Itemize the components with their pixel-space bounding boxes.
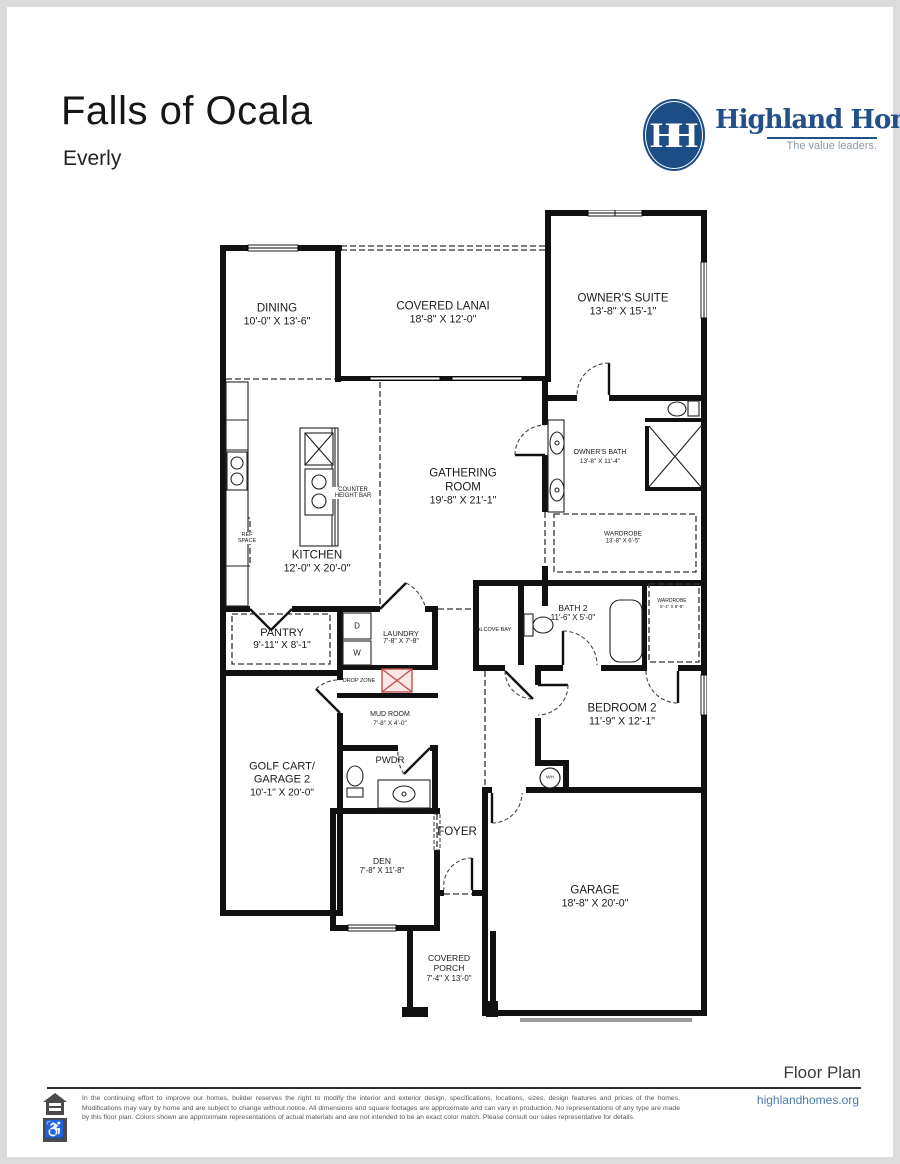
logo-rule: The value leaders. bbox=[767, 137, 877, 152]
document-page: Falls of Ocala Everly HH Highland Homes … bbox=[0, 0, 900, 1164]
website-url: highlandhomes.org bbox=[757, 1093, 859, 1107]
room-label-dining: DINING10'-0" X 13'-6" bbox=[222, 302, 332, 329]
alcove-bay-label: ALCOVE BAY bbox=[476, 627, 512, 633]
accessibility-icon: ♿ bbox=[43, 1118, 67, 1142]
room-label-foyer: FOYER bbox=[417, 825, 497, 839]
room-label-golf-cart-garage: GOLF CART/ GARAGE 210'-1" X 20'-0" bbox=[230, 760, 335, 799]
ref-space-label: REF SPACE bbox=[232, 532, 262, 544]
highland-homes-logo: HH Highland Homes The value leaders. bbox=[643, 99, 877, 177]
plan-name: Everly bbox=[63, 147, 121, 171]
room-label-pwdr: PWDR bbox=[355, 755, 425, 767]
logo-company-name: Highland Homes bbox=[715, 105, 877, 135]
drop-zone-bench bbox=[382, 669, 412, 692]
room-label-owners-suite: OWNER'S SUITE13'-8" X 15'-1" bbox=[543, 292, 703, 319]
floor-plan-label: Floor Plan bbox=[784, 1063, 861, 1083]
equal-housing-icon bbox=[43, 1093, 67, 1115]
counter-height-bar-label: COUNTER HEIGHT BAR bbox=[328, 487, 378, 499]
room-label-covered-lanai: COVERED LANAI18'-8" X 12'-0" bbox=[353, 300, 533, 327]
room-label-pantry: PANTRY9'-11" X 8'-1" bbox=[232, 627, 332, 653]
room-label-kitchen: KITCHEN12'-0" X 20'-0" bbox=[252, 549, 382, 576]
dryer-label: D bbox=[354, 622, 360, 631]
footer-divider bbox=[47, 1087, 861, 1089]
logo-monogram: HH bbox=[650, 114, 698, 156]
room-label-wardrobe2: WARDROBE5'-1" X 8'-8" bbox=[650, 598, 694, 610]
logo-text: Highland Homes The value leaders. bbox=[715, 105, 877, 152]
room-label-garage: GARAGE18'-8" X 20'-0" bbox=[525, 884, 665, 911]
floor-plan: DINING10'-0" X 13'-6" COVERED LANAI18'-8… bbox=[220, 210, 707, 1022]
room-label-gathering-room: GATHERING ROOM19'-8" X 21'-1" bbox=[416, 467, 511, 508]
room-label-owners-bath: OWNER'S BATH13'-8" X 11'-4" bbox=[571, 449, 629, 465]
washer-label: W bbox=[353, 649, 361, 658]
room-label-mud-room: MUD ROOM7'-8" X 4'-0" bbox=[348, 711, 432, 727]
logo-monogram-badge: HH bbox=[643, 99, 705, 171]
room-label-laundry: LAUNDRY7'-8" X 7'-8" bbox=[370, 629, 432, 647]
room-label-covered-porch: COVERED PORCH7'-4" X 13'-0" bbox=[413, 953, 485, 983]
room-label-wardrobe: WARDROBE13'-8" X 6'-5" bbox=[568, 530, 678, 545]
water-heater-label: WH bbox=[546, 776, 554, 781]
garage-door bbox=[520, 1018, 692, 1022]
room-label-bath2: BATH 211'-6" X 5'-0" bbox=[541, 603, 605, 623]
page-title: Falls of Ocala bbox=[61, 89, 313, 134]
drop-zone-label: DROP ZONE bbox=[341, 678, 377, 684]
disclaimer-text: In the continuing effort to improve our … bbox=[82, 1094, 680, 1123]
room-label-bedroom2: BEDROOM 211'-9" X 12'-1" bbox=[552, 702, 692, 729]
logo-tagline: The value leaders. bbox=[767, 139, 877, 152]
room-label-den: DEN7'-8" X 11'-8" bbox=[337, 856, 427, 876]
